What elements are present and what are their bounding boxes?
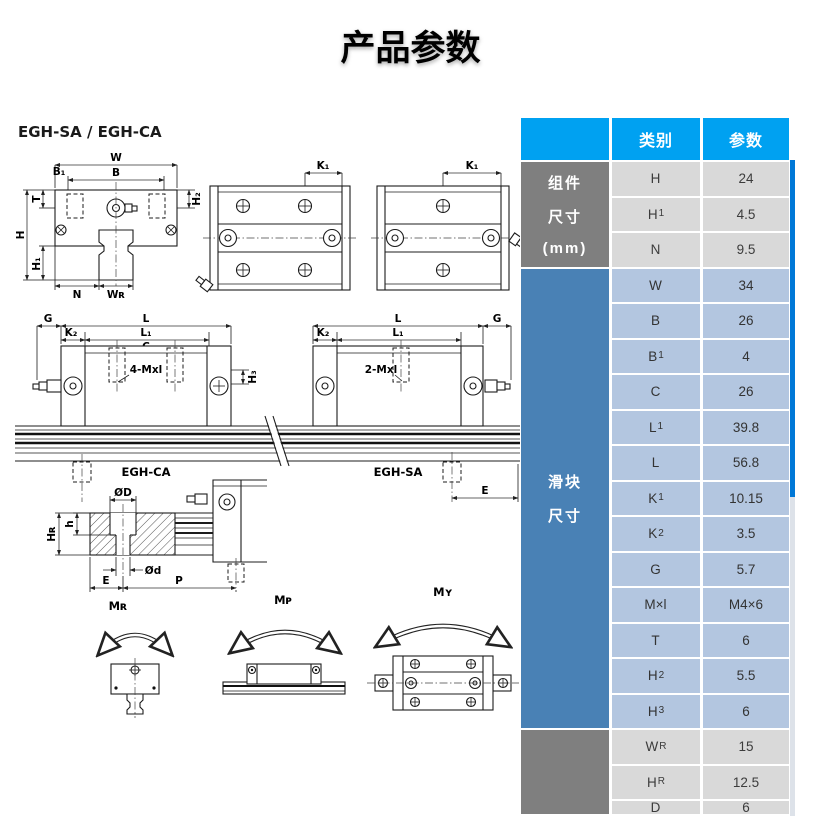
egh-ca-caption: EGH-CA — [121, 465, 170, 479]
param-value-cell: 15 — [703, 730, 789, 764]
param-name-cell: G — [612, 553, 700, 587]
callout-4mxl: 4-Mxl — [130, 364, 162, 376]
side-view-egh-sa: L G K₂ L₁ 2-Mxl E EGH-SA — [313, 313, 518, 502]
side-view-egh-ca: G L K₂ L₁ C 4-Mxl H₃ — [33, 313, 259, 502]
dim-l-label-2: L — [395, 313, 402, 325]
moment-yaw-diagram: Mʏ — [367, 585, 519, 710]
moment-pitch-diagram: Mᴘ — [223, 593, 345, 694]
param-name-cell: N — [612, 233, 700, 267]
moment-mp-label: Mᴘ — [274, 593, 292, 607]
dim-b1-label: B₁ — [53, 166, 66, 178]
param-name-cell: W — [612, 269, 700, 303]
moment-my-label: Mʏ — [433, 585, 453, 599]
dim-e-label: E — [481, 485, 488, 497]
dim-odsmall-label: Ød — [145, 565, 161, 577]
dim-l1-label: L₁ — [140, 327, 152, 339]
param-name-cell: L1 — [612, 411, 700, 445]
param-name-cell: C — [612, 375, 700, 409]
dim-g-label-2: G — [493, 313, 502, 325]
param-name-cell: H2 — [612, 659, 700, 693]
param-name-cell: H — [612, 162, 700, 196]
moment-roll-diagram: Mʀ — [99, 599, 171, 718]
param-value-cell: 26 — [703, 304, 789, 338]
param-value-cell: 9.5 — [703, 233, 789, 267]
param-value-cell: 12.5 — [703, 766, 789, 800]
dim-h2-label: H₂ — [191, 192, 203, 206]
param-value-cell: M4×6 — [703, 588, 789, 622]
param-value-cell: 6 — [703, 624, 789, 658]
dim-hr-label: Hʀ — [46, 526, 58, 542]
dim-g-label: G — [44, 313, 53, 325]
rail-cross-section-view: ØD h Hʀ Ød E P — [46, 480, 267, 592]
param-name-cell: K1 — [612, 482, 700, 516]
param-value-cell: 34 — [703, 269, 789, 303]
param-name-cell: B — [612, 304, 700, 338]
dim-k1-label: K₁ — [317, 160, 330, 172]
param-value-cell: 3.5 — [703, 517, 789, 551]
param-name-cell: D — [612, 801, 700, 814]
moment-mr-label: Mʀ — [109, 599, 128, 613]
table-header-parameter: 参数 — [703, 118, 789, 160]
param-value-cell: 6 — [703, 695, 789, 729]
dim-k2-label: K₂ — [65, 327, 78, 339]
parameters-table: 类别 参数 组件 尺寸 (mm) H 24 H1 4.5 N 9.5 滑块 尺寸… — [521, 118, 789, 814]
param-name-cell: T — [612, 624, 700, 658]
dim-h1-label: H₁ — [31, 257, 43, 271]
top-view-egh-sa: K₁ — [371, 160, 520, 290]
dim-k1-label-2: K₁ — [466, 160, 479, 172]
param-name-cell: M×l — [612, 588, 700, 622]
dim-hdepth-label: h — [64, 520, 76, 527]
table-scrollbar[interactable] — [790, 160, 795, 816]
technical-drawing: EGH-SA / EGH-CA W B B₁ T — [15, 118, 520, 730]
param-value-cell: 5.7 — [703, 553, 789, 587]
block-detail — [175, 480, 267, 588]
top-view-egh-ca: K₁ — [195, 160, 357, 292]
dim-n-label: N — [73, 289, 82, 301]
dim-od-label: ØD — [114, 487, 132, 499]
page: 产品参数 EGH-SA / EGH-CA W B B₁ — [0, 0, 821, 816]
param-value-cell: 5.5 — [703, 659, 789, 693]
dim-l-label: L — [143, 313, 150, 325]
param-value-cell: 6 — [703, 801, 789, 814]
dim-h-label: H — [15, 231, 27, 240]
dim-b-label: B — [112, 167, 120, 179]
table-header-corner — [521, 118, 609, 160]
front-cross-section-view: W B B₁ T H H₁ — [15, 152, 203, 301]
param-value-cell: 10.15 — [703, 482, 789, 516]
param-name-cell: H3 — [612, 695, 700, 729]
param-value-cell: 4 — [703, 340, 789, 374]
dim-w-label: W — [110, 152, 122, 164]
param-name-cell: HR — [612, 766, 700, 800]
param-name-cell: B1 — [612, 340, 700, 374]
group-label-rail-dimensions — [521, 730, 609, 814]
param-value-cell: 24 — [703, 162, 789, 196]
table-header-category: 类别 — [612, 118, 700, 160]
dim-p-label: P — [175, 575, 183, 587]
param-value-cell: 26 — [703, 375, 789, 409]
dim-h3-label: H₃ — [247, 370, 259, 384]
group-label-assembly-dimensions: 组件 尺寸 (mm) — [521, 162, 609, 267]
param-value-cell: 56.8 — [703, 446, 789, 480]
param-name-cell: H1 — [612, 198, 700, 232]
dim-t-label: T — [31, 195, 43, 203]
egh-sa-caption: EGH-SA — [374, 465, 423, 479]
drawing-model-label: EGH-SA / EGH-CA — [18, 123, 162, 141]
page-title: 产品参数 — [0, 20, 821, 71]
grease-nipple-icon — [509, 233, 520, 249]
param-name-cell: WR — [612, 730, 700, 764]
param-name-cell: L — [612, 446, 700, 480]
param-name-cell: K2 — [612, 517, 700, 551]
dim-wr-label: Wʀ — [107, 289, 126, 301]
scrollbar-thumb[interactable] — [790, 160, 795, 497]
dim-k2-label-2: K₂ — [317, 327, 330, 339]
callout-2mxl: 2-Mxl — [365, 364, 397, 376]
dim-e-label-2: E — [102, 575, 109, 587]
param-value-cell: 39.8 — [703, 411, 789, 445]
group-label-block-dimensions: 滑块 尺寸 — [521, 269, 609, 729]
dim-l1-label-2: L₁ — [392, 327, 404, 339]
param-value-cell: 4.5 — [703, 198, 789, 232]
